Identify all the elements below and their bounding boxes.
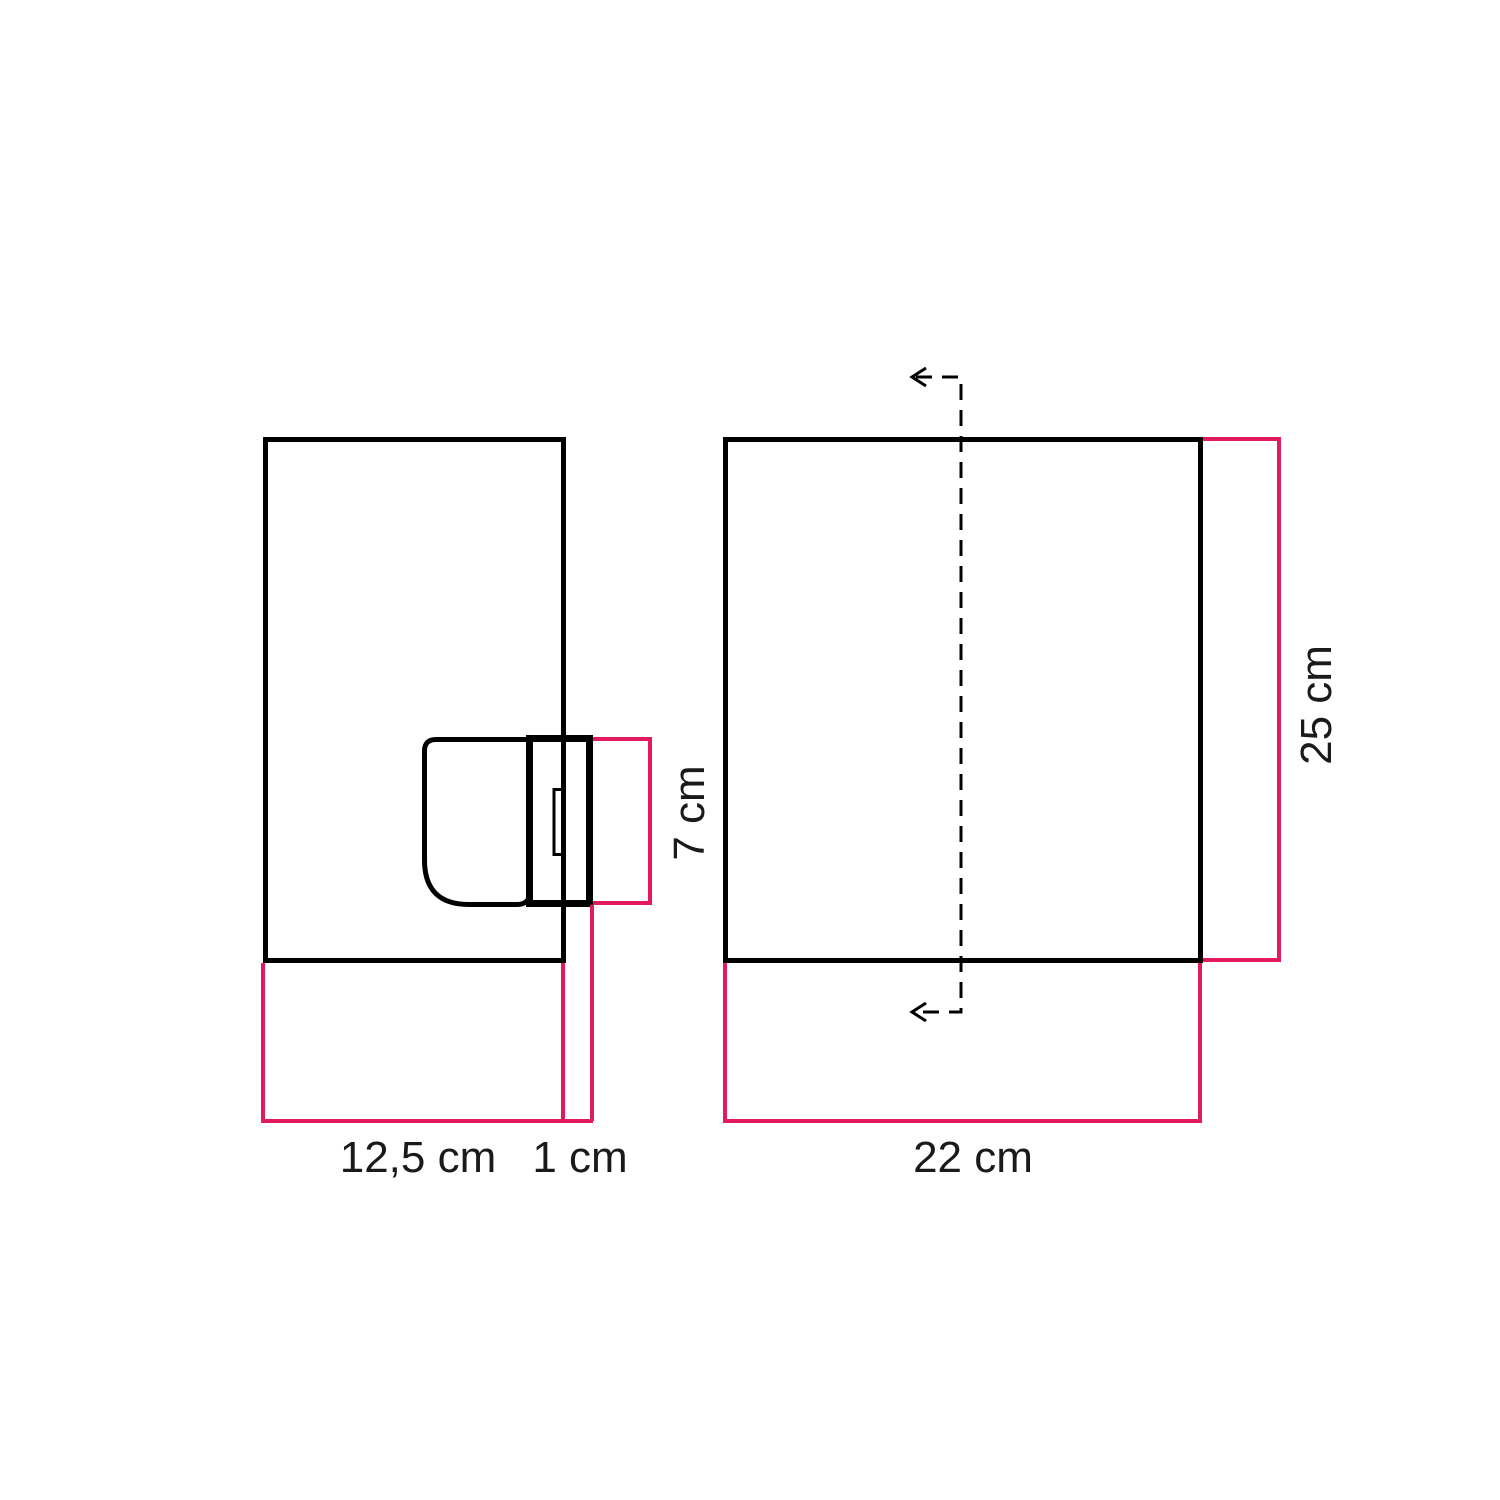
center-axis-dashed-line — [916, 377, 961, 1012]
dimension-label-shade-height: 25 cm — [1292, 645, 1341, 765]
lamp-holder-body-outline — [425, 740, 531, 905]
dimension-label-plate-width: 12,5 cm — [340, 1133, 497, 1182]
dimension-label-holder-height: 7 cm — [665, 765, 714, 860]
dimension-line-plate-width — [263, 963, 593, 1121]
dimension-line-shade-height — [1203, 439, 1279, 960]
dimension-label-shade-width: 22 cm — [913, 1133, 1033, 1182]
dimension-line-holder-height — [593, 739, 650, 903]
dimension-label-holder-protrusion: 1 cm — [532, 1133, 627, 1182]
side-view: 22 cm 25 cm — [725, 368, 1341, 1182]
front-view: 12,5 cm 1 cm 7 cm — [263, 440, 714, 1183]
dimension-diagram: 12,5 cm 1 cm 7 cm 22 cm 25 cm — [0, 0, 1500, 1500]
shade-outline — [726, 440, 1201, 961]
diagram-svg: 12,5 cm 1 cm 7 cm 22 cm 25 cm — [0, 0, 1500, 1500]
